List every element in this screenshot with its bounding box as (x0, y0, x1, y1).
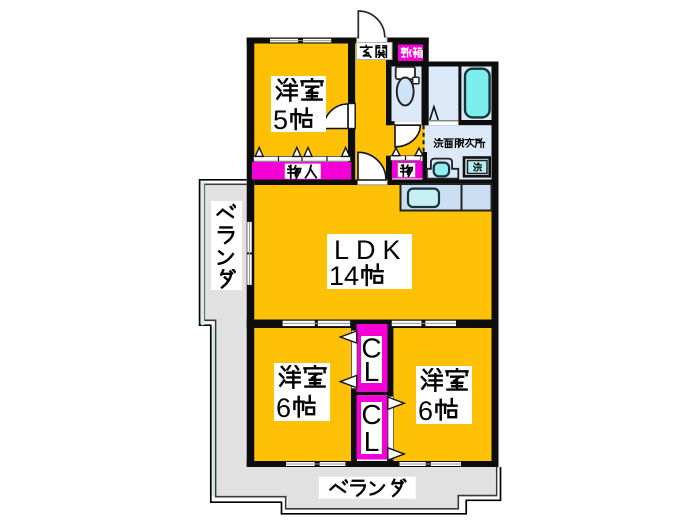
svg-text:5: 5 (273, 105, 288, 135)
svg-text:6: 6 (276, 393, 291, 423)
svg-text:14: 14 (329, 261, 359, 291)
svg-text:6: 6 (418, 396, 433, 426)
svg-text:L: L (364, 426, 380, 457)
svg-text:L: L (364, 356, 380, 387)
